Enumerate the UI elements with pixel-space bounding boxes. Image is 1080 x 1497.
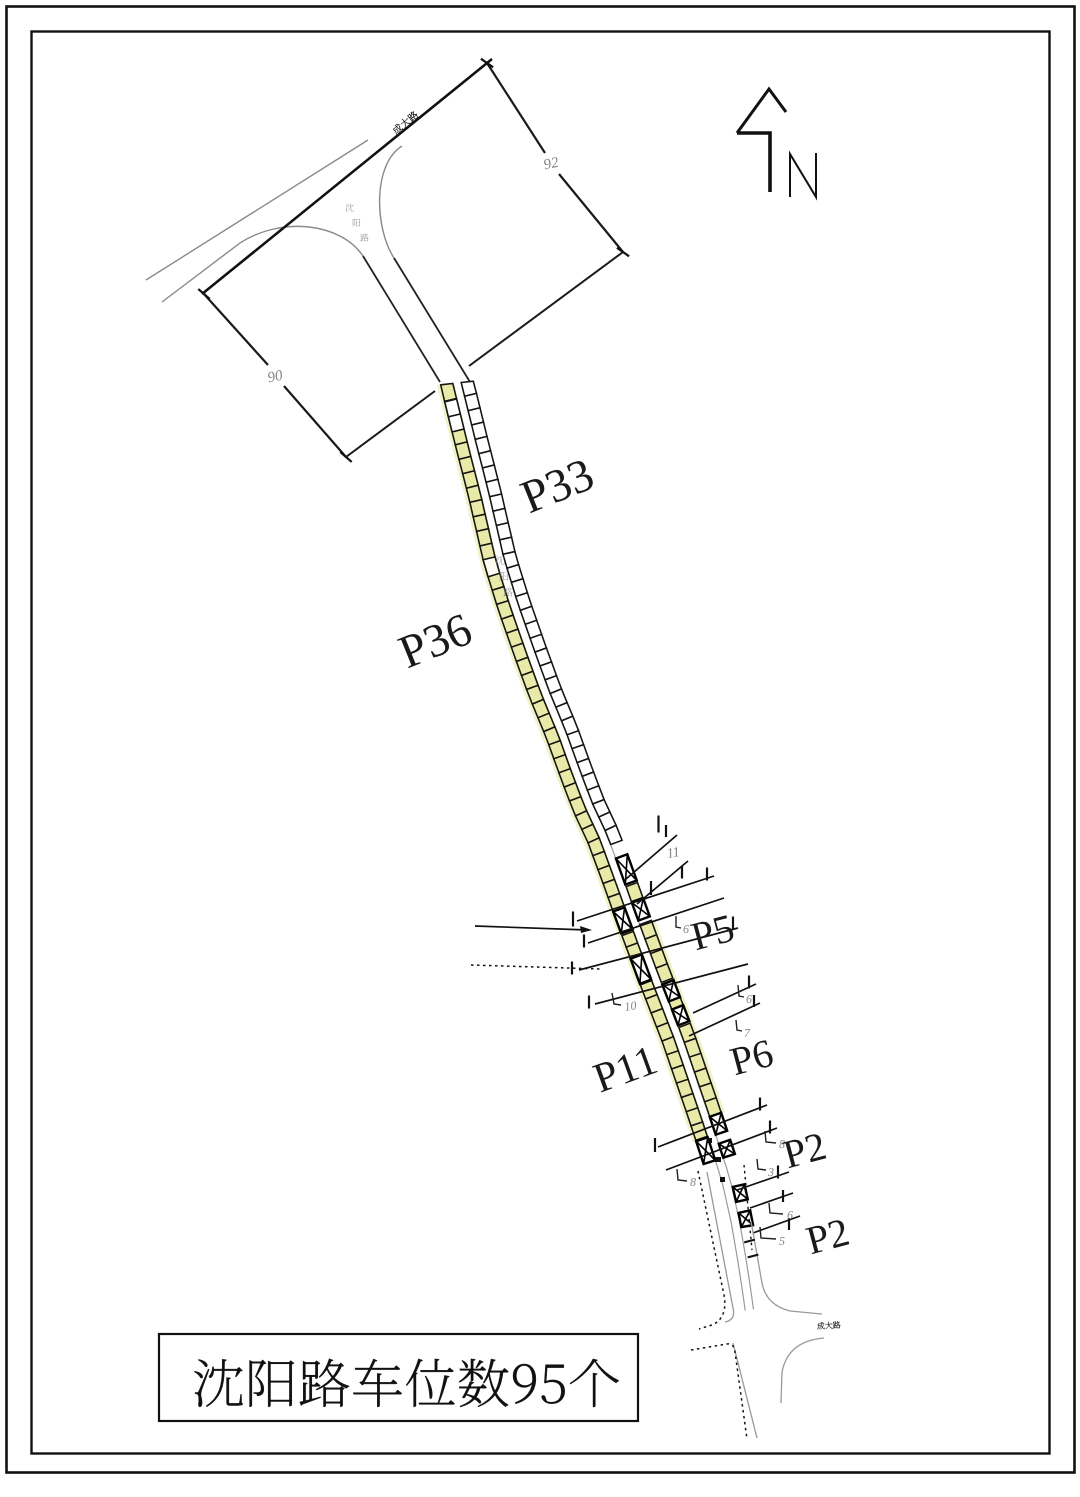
svg-text:6: 6 [787,1208,793,1222]
svg-text:5: 5 [779,1234,785,1248]
svg-text:6: 6 [746,992,752,1006]
svg-text:10: 10 [624,998,638,1014]
svg-text:11: 11 [666,845,681,862]
svg-text:3: 3 [767,1165,774,1179]
svg-text:8: 8 [690,1175,696,1189]
